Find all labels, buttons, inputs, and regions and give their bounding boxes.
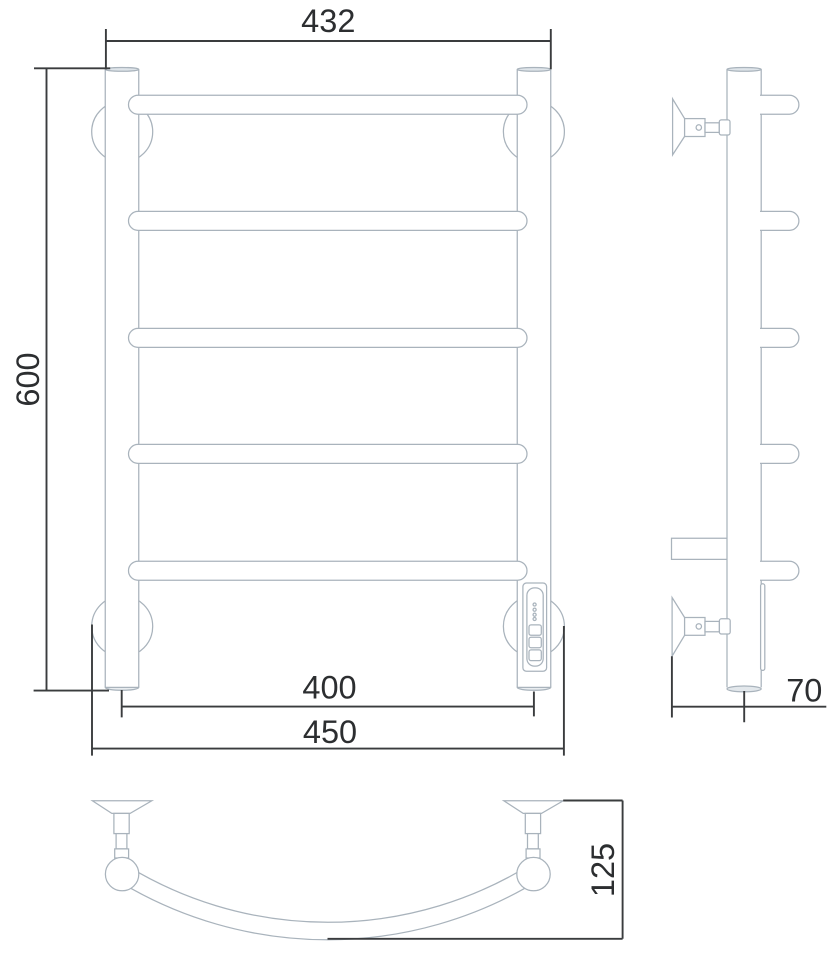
svg-text:400: 400 [302, 670, 356, 706]
svg-text:125: 125 [585, 843, 621, 897]
svg-text:600: 600 [10, 352, 46, 406]
svg-text:450: 450 [303, 714, 357, 750]
svg-text:70: 70 [786, 673, 822, 709]
svg-text:432: 432 [301, 3, 355, 39]
